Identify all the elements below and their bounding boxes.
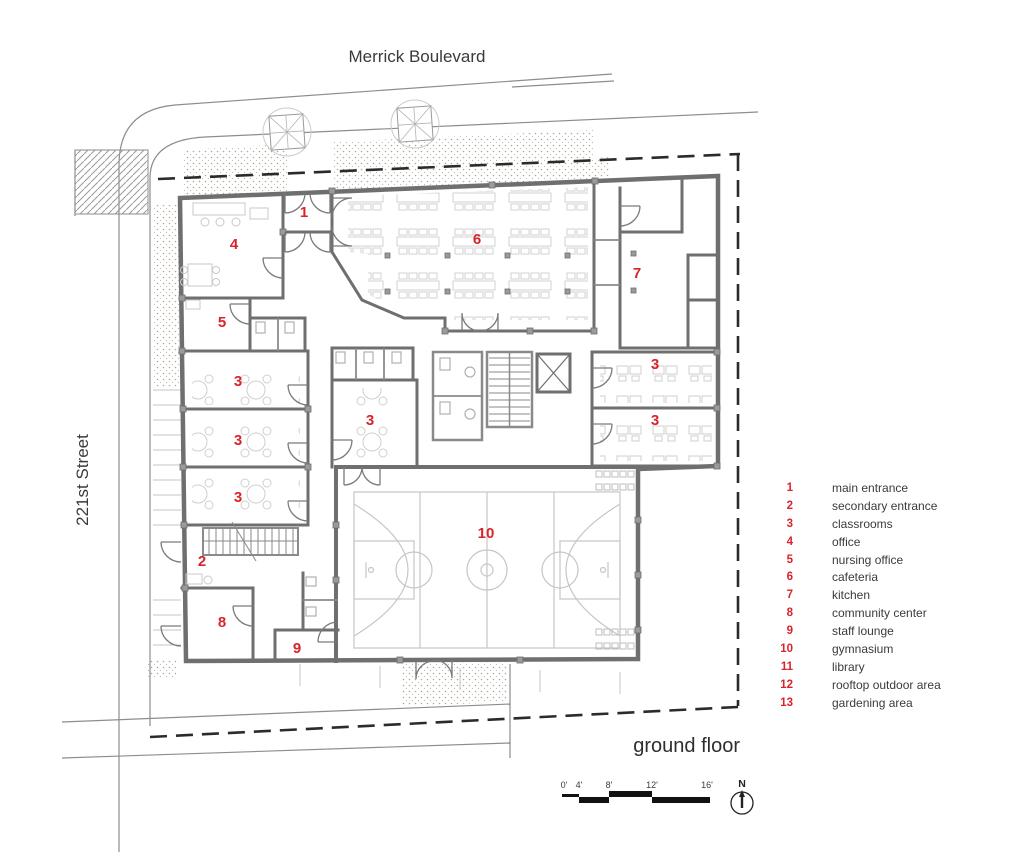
room-label-classroom-3: 3: [234, 489, 242, 506]
drawing-title: ground floor: [633, 735, 740, 757]
legend-number: 10: [760, 643, 793, 655]
legend-number: 7: [760, 589, 793, 601]
legend-item: 5nursing office: [760, 551, 1010, 569]
legend-item: 3classrooms: [760, 515, 1010, 533]
room-label-nursing-office: 5: [218, 314, 226, 331]
legend-item: 8community center: [760, 604, 1010, 622]
legend-item: 13gardening area: [760, 694, 1010, 712]
street-name-left: 221st Street: [73, 434, 92, 526]
room-label-main-entrance: 1: [300, 204, 308, 221]
legend-number: 3: [760, 518, 793, 530]
scale-tick-0: 0': [561, 780, 568, 790]
legend-number: 9: [760, 625, 793, 637]
legend-label: kitchen: [832, 588, 870, 602]
street-name-top: Merrick Boulevard: [349, 47, 486, 66]
legend-item: 6cafeteria: [760, 568, 1010, 586]
north-arrow: N: [731, 778, 753, 814]
room-label-staff-lounge: 9: [293, 640, 301, 657]
scale-tick-8: 8': [606, 780, 613, 790]
scale-tick-12: 12': [646, 780, 658, 790]
scale-tick-16: 16': [701, 780, 713, 790]
legend-number: 4: [760, 536, 793, 548]
legend-item: 10gymnasium: [760, 640, 1010, 658]
legend-item: 1main entrance: [760, 479, 1010, 497]
legend-label: office: [832, 535, 860, 549]
hatched-planting-strip: [75, 150, 148, 214]
legend-item: 11library: [760, 658, 1010, 676]
room-label-classroom-1: 3: [234, 373, 242, 390]
legend-number: 1: [760, 482, 793, 494]
legend-number: 2: [760, 500, 793, 512]
scale-bar: 0' 4' 8' 12' 16': [561, 780, 714, 803]
room-label-community-center: 8: [218, 614, 226, 631]
site-plan-svg: 1 4 5 3 3 3 2 8 9 3 6 7 3 3 10 Merrick B…: [0, 0, 1020, 863]
legend-label: classrooms: [832, 517, 893, 531]
legend-label: rooftop outdoor area: [832, 678, 941, 692]
legend: 1main entrance 2secondary entrance 3clas…: [760, 479, 1010, 712]
room-label-secondary-entrance: 2: [198, 553, 206, 570]
legend-number: 12: [760, 679, 793, 691]
legend-label: secondary entrance: [832, 499, 937, 513]
legend-label: cafeteria: [832, 570, 878, 584]
room-label-office: 4: [230, 236, 239, 253]
room-label-classroom-2: 3: [234, 432, 242, 449]
legend-label: gardening area: [832, 696, 913, 710]
room-label-classroom-center: 3: [366, 412, 374, 429]
legend-number: 5: [760, 554, 793, 566]
north-label: N: [738, 778, 746, 790]
building: [161, 176, 720, 679]
room-label-classroom-right-1: 3: [651, 356, 659, 373]
legend-item: 7kitchen: [760, 586, 1010, 604]
legend-number: 13: [760, 697, 793, 709]
room-label-kitchen: 7: [633, 265, 641, 282]
stair-secondary: [203, 522, 298, 561]
legend-item: 4office: [760, 533, 1010, 551]
room-label-cafeteria: 6: [473, 231, 481, 248]
legend-label: gymnasium: [832, 642, 893, 656]
floor-plan-sheet: 1 4 5 3 3 3 2 8 9 3 6 7 3 3 10 Merrick B…: [0, 0, 1020, 863]
legend-number: 11: [760, 661, 793, 673]
room-label-gymnasium: 10: [478, 525, 495, 542]
legend-item: 9staff lounge: [760, 622, 1010, 640]
room-label-classroom-right-2: 3: [651, 412, 659, 429]
legend-number: 6: [760, 571, 793, 583]
legend-number: 8: [760, 607, 793, 619]
legend-label: staff lounge: [832, 624, 894, 638]
legend-label: main entrance: [832, 481, 908, 495]
legend-label: nursing office: [832, 553, 903, 567]
scale-tick-4: 4': [576, 780, 583, 790]
legend-item: 2secondary entrance: [760, 497, 1010, 515]
legend-item: 12rooftop outdoor area: [760, 676, 1010, 694]
legend-label: community center: [832, 606, 927, 620]
legend-label: library: [832, 660, 865, 674]
